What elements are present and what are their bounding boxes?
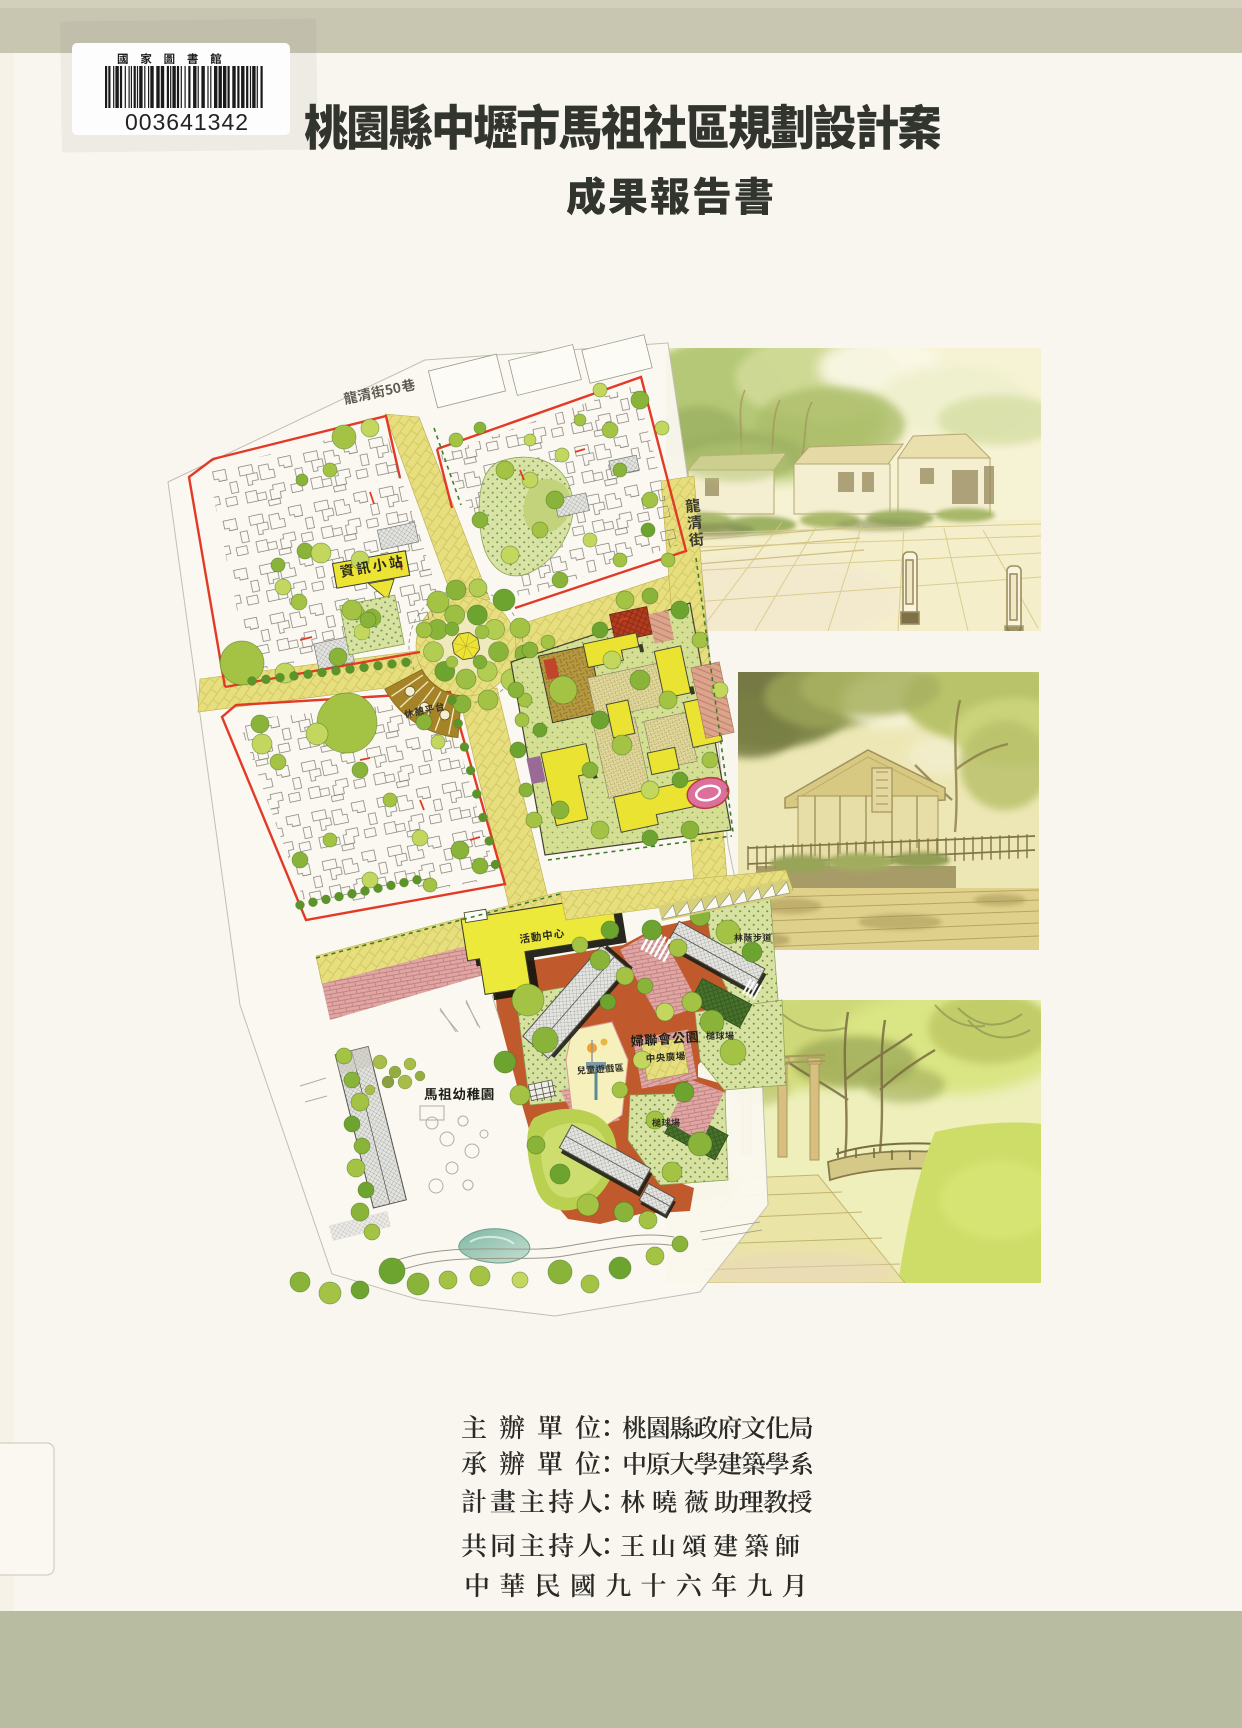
svg-text:003641342: 003641342 bbox=[125, 109, 249, 135]
